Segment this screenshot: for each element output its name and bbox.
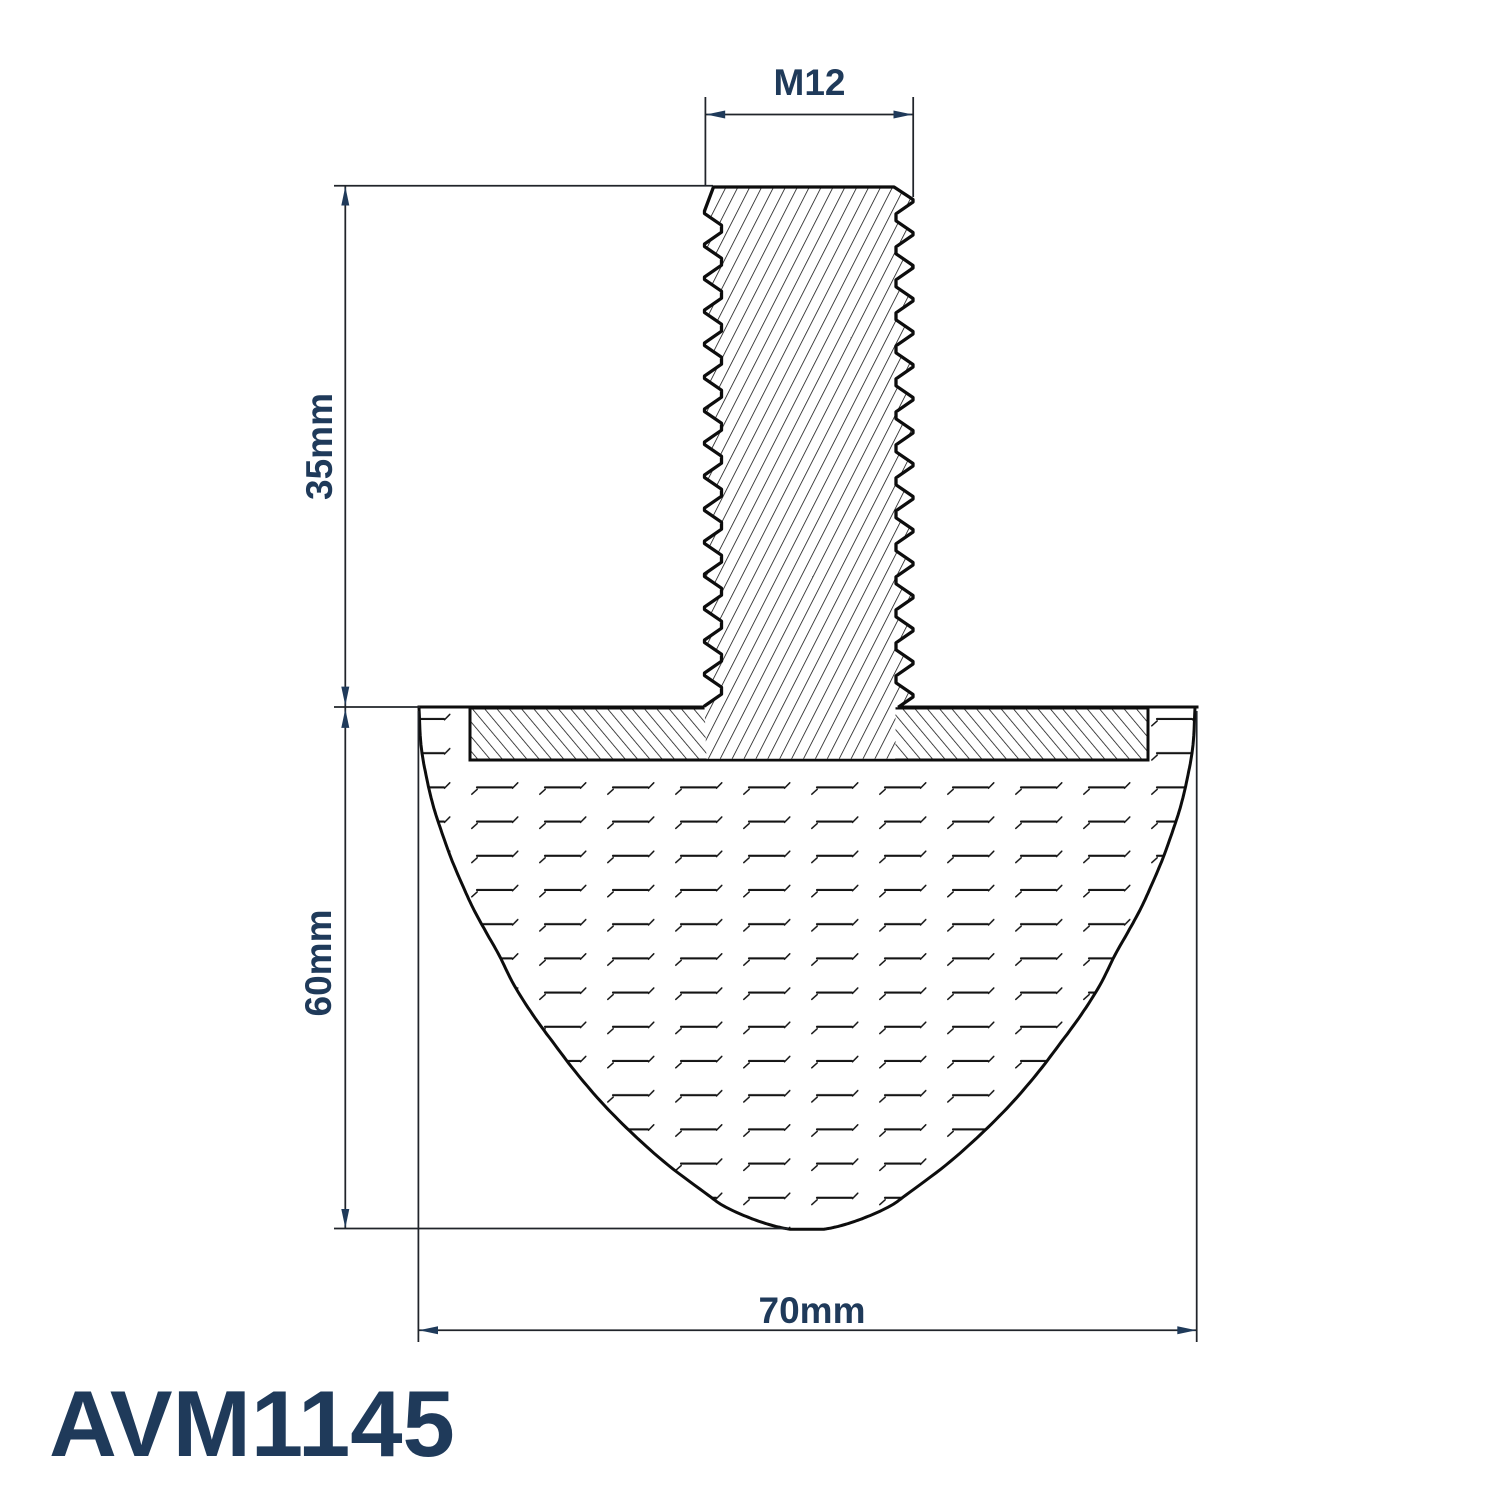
svg-text:60mm: 60mm [298, 910, 339, 1017]
svg-text:AVM1145: AVM1145 [49, 1371, 455, 1476]
svg-text:35mm: 35mm [299, 393, 340, 500]
svg-text:70mm: 70mm [759, 1290, 866, 1331]
svg-text:M12: M12 [774, 62, 846, 103]
